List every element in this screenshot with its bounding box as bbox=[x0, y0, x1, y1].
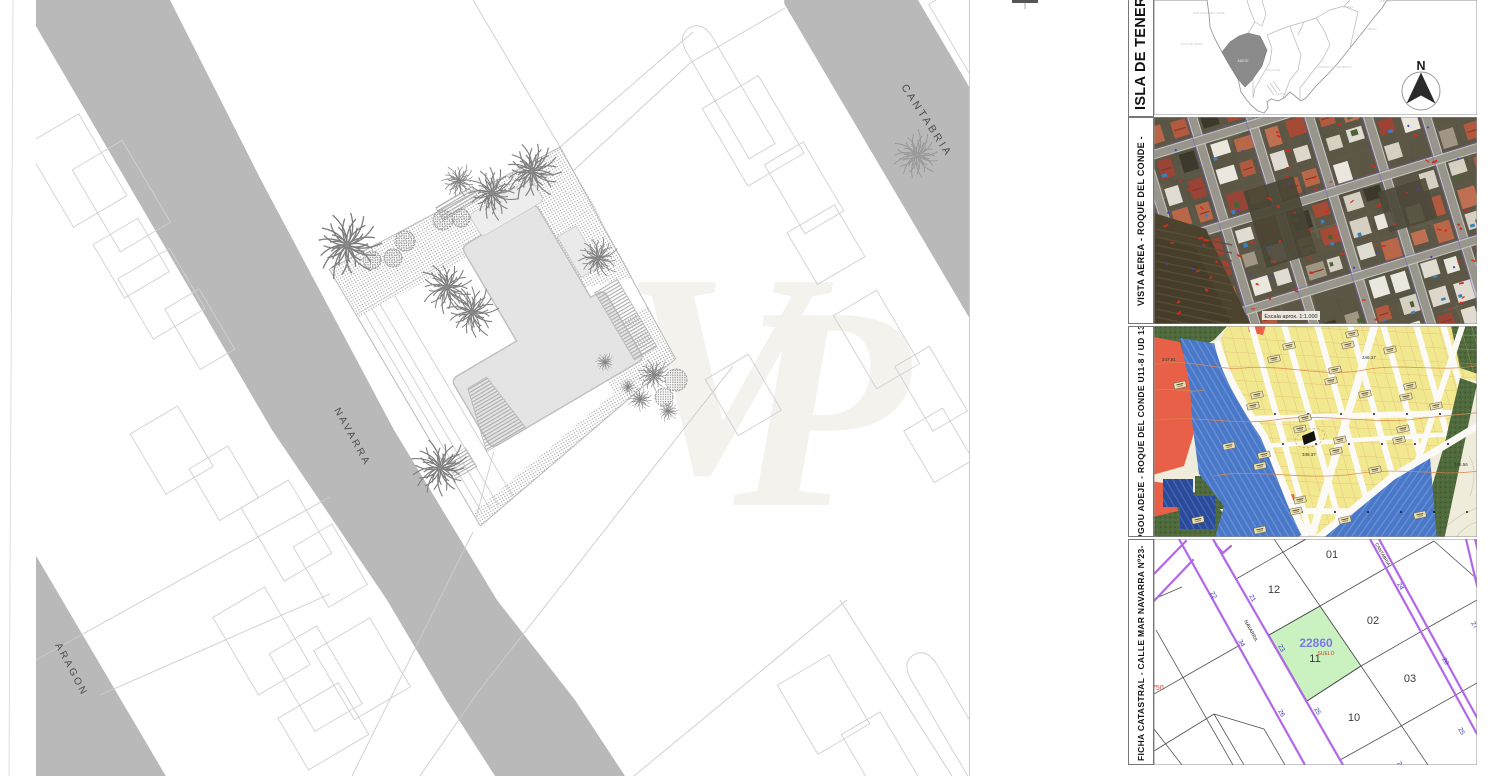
svg-text:346.37: 346.37 bbox=[1362, 355, 1376, 360]
svg-text:SUELO: SUELO bbox=[1318, 651, 1335, 657]
svg-text:03: 03 bbox=[1404, 673, 1416, 685]
svg-text:SANTIAGO DEL TEIDE: SANTIAGO DEL TEIDE bbox=[1193, 11, 1225, 15]
svg-text:ARONA: ARONA bbox=[1276, 92, 1287, 96]
svg-text:22860: 22860 bbox=[1299, 636, 1333, 650]
svg-text:247.91: 247.91 bbox=[1162, 357, 1176, 362]
svg-text:Escala aprox. 1:1.000: Escala aprox. 1:1.000 bbox=[1264, 314, 1317, 320]
svg-text:02: 02 bbox=[1367, 615, 1379, 627]
svg-text:P: P bbox=[728, 247, 914, 568]
svg-text:346.37: 346.37 bbox=[1302, 452, 1316, 457]
svg-text:ADEJE: ADEJE bbox=[1238, 59, 1250, 63]
svg-text:10: 10 bbox=[1348, 712, 1360, 724]
svg-text:750: 750 bbox=[1154, 685, 1164, 692]
svg-text:N: N bbox=[1416, 59, 1425, 73]
svg-text:ARICO: ARICO bbox=[1367, 27, 1377, 31]
svg-text:346.56: 346.56 bbox=[1454, 462, 1468, 467]
svg-text:VILAFLOR: VILAFLOR bbox=[1266, 68, 1281, 72]
svg-text:GUIMAR: GUIMAR bbox=[1379, 0, 1392, 3]
svg-text:GRANADILLA DE ABONA: GRANADILLA DE ABONA bbox=[1316, 65, 1351, 69]
svg-text:01: 01 bbox=[1326, 549, 1338, 561]
svg-text:12: 12 bbox=[1268, 584, 1280, 596]
svg-text:FASNIA: FASNIA bbox=[1343, 5, 1354, 9]
svg-text:GUIA DE ISORA: GUIA DE ISORA bbox=[1181, 42, 1203, 46]
